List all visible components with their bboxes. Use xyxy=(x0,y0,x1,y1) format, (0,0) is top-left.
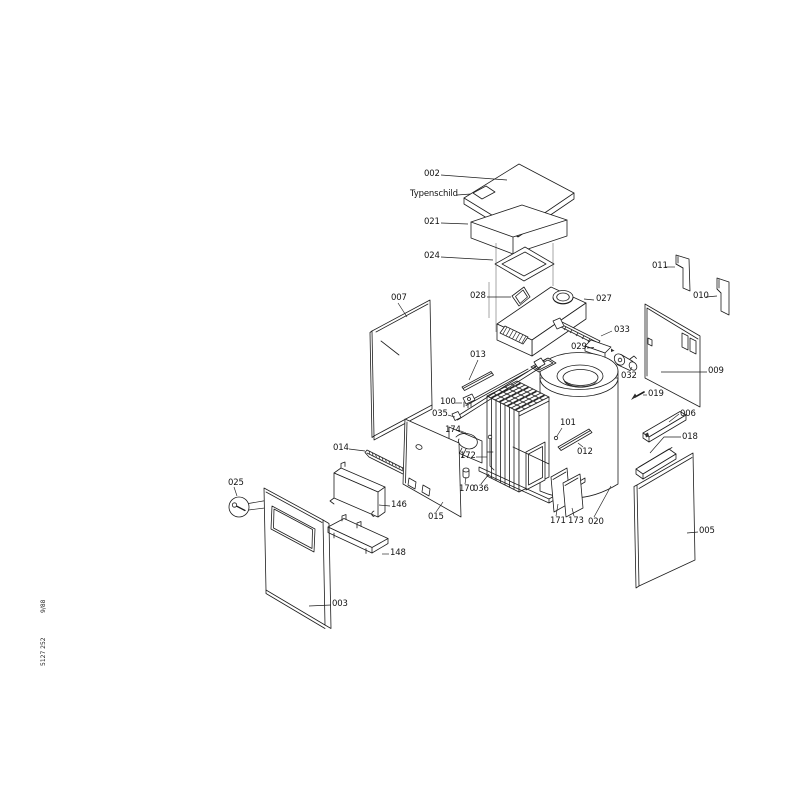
part-021-slab xyxy=(471,205,567,254)
part-146-bracket xyxy=(330,462,385,517)
part-label-006: 006 xyxy=(680,410,696,419)
part-019-screw xyxy=(631,392,644,400)
part-label-172: 172 xyxy=(460,452,476,461)
part-label-009: 009 xyxy=(708,367,724,376)
part-label-005: 005 xyxy=(699,527,715,536)
part-011-strip xyxy=(676,255,690,291)
part-label-036: 036 xyxy=(473,485,489,494)
flue-collar xyxy=(553,291,573,304)
part-label-011: 011 xyxy=(652,262,668,271)
part-013-bar xyxy=(462,372,494,391)
part-003-front-door xyxy=(264,488,331,629)
part-label-028: 028 xyxy=(470,292,486,301)
part-label-012: 012 xyxy=(577,448,593,457)
part-148-rail xyxy=(328,515,388,554)
doc-number-code: 5127 252 xyxy=(41,637,47,666)
part-label-148: 148 xyxy=(390,549,406,558)
part-170-grommet xyxy=(463,468,469,478)
diagram-page: 002 Typenschild 021 024 028 027 033 029 … xyxy=(0,0,800,800)
doc-number-date: 9/88 xyxy=(41,600,47,613)
part-label-146: 146 xyxy=(391,501,407,510)
part-025-detail xyxy=(229,497,270,517)
part-024-gasket xyxy=(495,247,554,281)
part-label-025: 025 xyxy=(228,479,244,488)
part-label-035: 035 xyxy=(432,410,448,419)
part-label-020: 020 xyxy=(588,518,604,527)
part-010-strip xyxy=(717,278,729,315)
part-label-027: 027 xyxy=(596,295,612,304)
part-label-033: 033 xyxy=(614,326,630,335)
part-label-174: 174 xyxy=(445,426,461,435)
part-label-173: 173 xyxy=(568,517,584,526)
part-label-013: 013 xyxy=(470,351,486,360)
exploded-diagram-svg xyxy=(0,0,800,800)
part-label-015: 015 xyxy=(428,513,444,522)
part-label-018: 018 xyxy=(682,433,698,442)
part-label-014: 014 xyxy=(333,444,349,453)
part-label-101: 101 xyxy=(560,419,576,428)
part-label-029: 029 xyxy=(571,343,587,352)
part-label-021: 021 xyxy=(424,218,440,227)
part-label-171: 171 xyxy=(550,517,566,526)
part-label-003: 003 xyxy=(332,600,348,609)
part-label-019: 019 xyxy=(648,390,664,399)
part-label-002: 002 xyxy=(424,170,440,179)
part-label-typenschild: Typenschild xyxy=(410,190,458,199)
part-label-007: 007 xyxy=(391,294,407,303)
part-label-010: 010 xyxy=(693,292,709,301)
part-007-side-panel xyxy=(370,300,432,440)
heat-exchanger-block xyxy=(487,381,549,492)
part-label-032: 032 xyxy=(621,372,637,381)
part-label-100: 100 xyxy=(440,398,456,407)
part-label-024: 024 xyxy=(424,252,440,261)
